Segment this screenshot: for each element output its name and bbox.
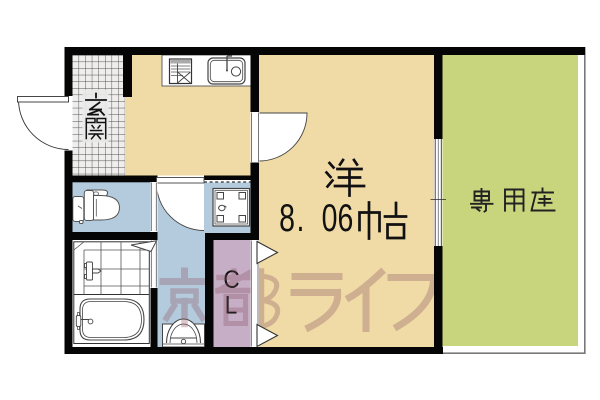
svg-text:06: 06 bbox=[322, 197, 354, 240]
svg-text:.: . bbox=[297, 197, 305, 240]
svg-text:8: 8 bbox=[279, 197, 295, 240]
